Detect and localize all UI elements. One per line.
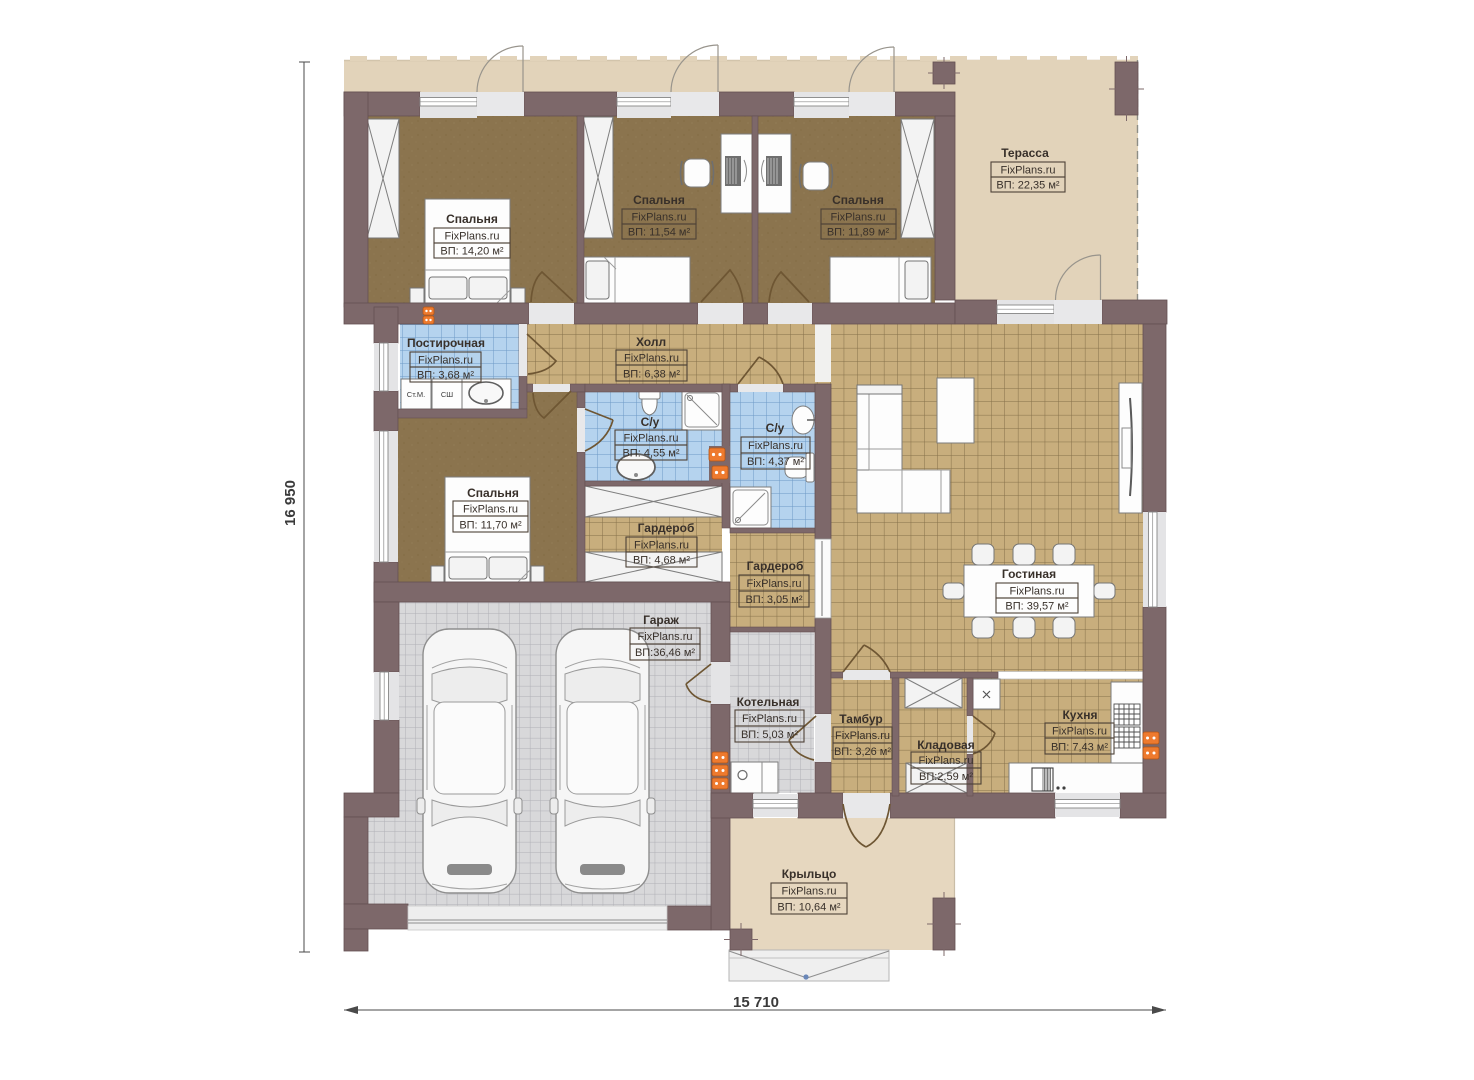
svg-text:Холл: Холл [636,335,666,349]
svg-text:Спальня: Спальня [446,212,498,226]
svg-text:FixPlans.ru: FixPlans.ru [1000,165,1055,177]
svg-text:FixPlans.ru: FixPlans.ru [830,212,885,224]
svg-text:ВП: 11,89 м²: ВП: 11,89 м² [827,227,890,239]
svg-text:FixPlans.ru: FixPlans.ru [1052,726,1107,738]
svg-text:ВП: 11,54 м²: ВП: 11,54 м² [628,227,691,239]
svg-text:ВП: 5,03 м²: ВП: 5,03 м² [741,729,798,741]
svg-text:Крыльцо: Крыльцо [782,867,837,881]
svg-text:ВП: 3,68 м²: ВП: 3,68 м² [417,370,474,382]
svg-text:FixPlans.ru: FixPlans.ru [742,713,797,725]
svg-text:FixPlans.ru: FixPlans.ru [418,355,473,367]
svg-text:Котельная: Котельная [737,695,800,709]
svg-text:FixPlans.ru: FixPlans.ru [746,578,801,590]
svg-text:FixPlans.ru: FixPlans.ru [463,504,518,516]
svg-text:ВП: 22,35 м²: ВП: 22,35 м² [996,180,1060,192]
svg-text:ВП: 10,64 м²: ВП: 10,64 м² [777,902,841,914]
svg-text:Гараж: Гараж [643,613,679,627]
svg-text:Терасса: Терасса [1001,146,1049,160]
svg-text:ВП: 4,68 м²: ВП: 4,68 м² [633,555,690,567]
svg-text:FixPlans.ru: FixPlans.ru [835,730,890,742]
svg-text:Гардероб: Гардероб [747,559,804,573]
svg-text:ВП: 39,57 м²: ВП: 39,57 м² [1005,601,1069,613]
svg-text:Тамбур: Тамбур [839,712,883,726]
svg-text:Кухня: Кухня [1062,708,1097,722]
svg-text:ВП: 11,70 м²: ВП: 11,70 м² [459,520,522,532]
svg-text:FixPlans.ru: FixPlans.ru [748,440,803,452]
svg-text:ВП: 3,26 м²: ВП: 3,26 м² [834,746,891,758]
svg-text:FixPlans.ru: FixPlans.ru [631,212,686,224]
svg-text:С/у: С/у [641,415,660,429]
svg-text:ВП: 7,43 м²: ВП: 7,43 м² [1051,742,1108,754]
svg-text:ВП: 14,20 м²: ВП: 14,20 м² [440,246,504,258]
svg-text:Ст.М.: Ст.М. [407,390,425,399]
svg-text:С/у: С/у [766,421,785,435]
svg-text:СШ: СШ [441,390,453,399]
svg-text:ВП: 3,05 м²: ВП: 3,05 м² [745,594,802,606]
svg-text:Спальня: Спальня [467,486,519,500]
svg-text:Спальня: Спальня [832,193,884,207]
svg-text:FixPlans.ru: FixPlans.ru [624,353,679,365]
svg-text:FixPlans.ru: FixPlans.ru [634,540,689,552]
svg-text:16 950: 16 950 [282,480,299,526]
svg-text:ВП:36,46 м²: ВП:36,46 м² [635,647,695,659]
svg-text:ВП: 6,38 м²: ВП: 6,38 м² [623,369,680,381]
svg-text:FixPlans.ru: FixPlans.ru [781,886,836,898]
svg-text:Спальня: Спальня [633,193,685,207]
svg-text:FixPlans.ru: FixPlans.ru [918,755,973,767]
svg-text:ВП: 4,37 м²: ВП: 4,37 м² [747,456,804,468]
svg-text:15 710: 15 710 [733,994,779,1011]
svg-text:FixPlans.ru: FixPlans.ru [444,231,499,243]
svg-text:Гардероб: Гардероб [638,521,695,535]
svg-text:ВП: 4,55 м²: ВП: 4,55 м² [622,448,679,460]
svg-text:Постирочная: Постирочная [407,336,485,350]
svg-text:FixPlans.ru: FixPlans.ru [1009,586,1064,598]
svg-text:ВП:2,59 м²: ВП:2,59 м² [919,771,973,783]
svg-text:FixPlans.ru: FixPlans.ru [623,433,678,445]
svg-text:FixPlans.ru: FixPlans.ru [637,631,692,643]
svg-text:Гостиная: Гостиная [1002,567,1056,581]
svg-text:Кладовая: Кладовая [917,738,974,752]
